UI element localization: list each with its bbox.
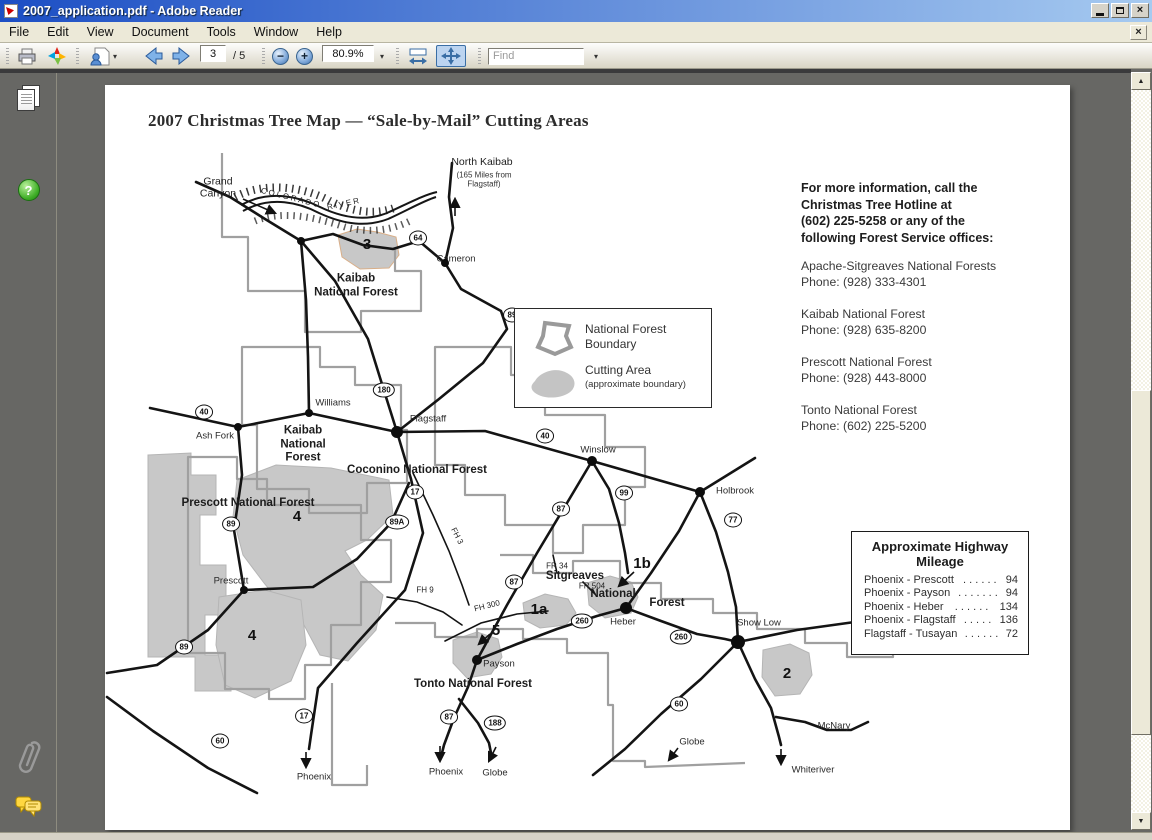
- zoom-out-button[interactable]: −: [272, 48, 289, 65]
- help-button[interactable]: ?: [0, 179, 57, 201]
- info-panel: For more information, call the Christmas…: [801, 180, 1033, 451]
- map-label: Heber: [610, 616, 636, 627]
- restore-icon: [1116, 7, 1124, 14]
- pages-panel-button[interactable]: [0, 85, 57, 111]
- minimize-button[interactable]: [1091, 3, 1109, 18]
- find-caret-icon[interactable]: ▾: [594, 45, 598, 67]
- map-label: FH 3: [449, 526, 465, 546]
- acrobat-star-icon: [47, 46, 67, 66]
- acrobat-collab-button[interactable]: [44, 45, 70, 67]
- close-button[interactable]: ×: [1131, 3, 1149, 18]
- fit-page-button[interactable]: [436, 45, 466, 67]
- mileage-box: Approximate Highway Mileage Phoenix - Pr…: [851, 531, 1029, 655]
- map-label: Williams: [315, 397, 350, 408]
- map-label: 1b: [633, 555, 651, 573]
- map-label: Kaibab National Forest: [314, 272, 398, 299]
- arrow-left-icon: [143, 47, 164, 65]
- map-label: 5: [492, 622, 500, 640]
- town-dot: [731, 635, 745, 649]
- map-label: FH 9: [416, 585, 433, 594]
- town-dot: [391, 426, 403, 438]
- town-dot: [472, 655, 482, 665]
- highway-shield: 99: [615, 486, 633, 501]
- map-label: Payson: [483, 658, 515, 669]
- highway-shield: 40: [536, 429, 554, 444]
- menu-help[interactable]: Help: [307, 22, 351, 42]
- map-label: (165 Miles from Flagstaff): [456, 171, 511, 190]
- map-legend: National Forest Boundary Cutting Area (a…: [514, 308, 712, 408]
- map-label: McNary: [818, 720, 851, 731]
- menu-edit[interactable]: Edit: [38, 22, 78, 42]
- highway-shield: 64: [409, 231, 427, 246]
- office-phone: Phone: (928) 443-8000: [801, 371, 1033, 387]
- page-count-label: / 5: [233, 45, 245, 67]
- zoom-level-select[interactable]: 80.9%: [322, 45, 374, 62]
- close-icon: ×: [1137, 5, 1143, 16]
- document-area: ? 2007 Christmas Tree Map — “S: [0, 73, 1131, 832]
- highway-shield: 87: [505, 575, 523, 590]
- paperclip-icon: [16, 737, 42, 779]
- printer-icon: [17, 48, 37, 65]
- pdf-page: 2007 Christmas Tree Map — “Sale-by-Mail”…: [105, 85, 1070, 830]
- town-dot: [441, 259, 449, 267]
- town-dot: [695, 487, 705, 497]
- office-name: Prescott National Forest: [801, 355, 1033, 371]
- town-dot: [587, 456, 597, 466]
- highway-shield: 180: [373, 383, 395, 398]
- pages-icon: [17, 85, 41, 111]
- find-input[interactable]: [488, 48, 584, 65]
- highway-shield: 17: [406, 485, 424, 500]
- map-label: Grand Canyon: [200, 176, 236, 201]
- map-label: 3: [363, 236, 371, 254]
- map-label: Show Low: [737, 617, 781, 628]
- toolbar-grip: [478, 48, 481, 65]
- map-label: Phoenix: [429, 766, 463, 777]
- navigation-pane: ?: [0, 73, 57, 832]
- office-entry: Prescott National ForestPhone: (928) 443…: [801, 355, 1033, 386]
- forest-offices: Apache-Sitgreaves National ForestsPhone:…: [801, 259, 1033, 434]
- legend-cut-sub: (approximate boundary): [585, 379, 686, 390]
- town-dot: [620, 602, 632, 614]
- map-label: Ash Fork: [196, 430, 234, 441]
- document-close-button[interactable]: ×: [1130, 25, 1147, 40]
- adobe-reader-window: 2007_application.pdf - Adobe Reader × Fi…: [0, 0, 1152, 840]
- scroll-thumb[interactable]: [1131, 390, 1151, 735]
- cutting-area-icon: [527, 365, 581, 401]
- highway-shield: 77: [724, 513, 742, 528]
- office-entry: Apache-Sitgreaves National ForestsPhone:…: [801, 259, 1033, 290]
- office-phone: Phone: (928) 635-8200: [801, 323, 1033, 339]
- office-phone: Phone: (928) 333-4301: [801, 275, 1033, 291]
- highway-shield: 260: [670, 630, 692, 645]
- minimize-icon: [1096, 13, 1104, 16]
- window-bottom-edge: [0, 832, 1152, 840]
- map-label: Coconino National Forest: [347, 464, 487, 478]
- pdf-app-icon: [4, 4, 18, 18]
- map-label: 2: [783, 665, 791, 683]
- vertical-scrollbar[interactable]: ▲ ▼: [1131, 72, 1151, 830]
- map-label: Phoenix: [297, 771, 331, 782]
- map-label: Whiteriver: [792, 764, 835, 775]
- map-label: 1a: [531, 601, 548, 619]
- office-name: Apache-Sitgreaves National Forests: [801, 259, 1033, 275]
- town-dot: [305, 409, 313, 417]
- highway-shield: 17: [295, 709, 313, 724]
- town-dot: [297, 237, 305, 245]
- map-label: Forest: [649, 597, 684, 611]
- fit-width-button[interactable]: [404, 45, 432, 67]
- office-phone: Phone: (602) 225-5200: [801, 419, 1033, 435]
- highway-shield: 89: [222, 517, 240, 532]
- scroll-up-button[interactable]: ▲: [1131, 72, 1151, 90]
- window-title: 2007_application.pdf - Adobe Reader: [23, 4, 242, 18]
- highway-shield: 40: [195, 405, 213, 420]
- menu-document[interactable]: Document: [123, 22, 198, 42]
- map-label: Kaibab National Forest: [280, 425, 325, 466]
- menu-bar: FileEditViewDocumentToolsWindowHelp: [0, 22, 1152, 43]
- attachments-panel-button[interactable]: [0, 737, 57, 779]
- help-icon: ?: [18, 179, 40, 201]
- title-bar: 2007_application.pdf - Adobe Reader ×: [0, 0, 1152, 22]
- next-page-button[interactable]: [168, 45, 194, 67]
- map-label: 4: [293, 508, 301, 526]
- map-label: 4: [248, 627, 256, 645]
- zoom-caret-icon[interactable]: ▾: [380, 45, 384, 67]
- map-label: Holbrook: [716, 485, 754, 496]
- toolbar-grip: [396, 48, 399, 65]
- fit-page-icon: [440, 46, 462, 66]
- mileage-row: Flagstaff - Tusayan. . . . . .72: [864, 628, 1018, 641]
- legend-cut-label: Cutting Area: [585, 363, 651, 378]
- toolbar-grip: [76, 48, 79, 65]
- menu-window[interactable]: Window: [245, 22, 307, 42]
- map-label: Globe: [679, 736, 704, 747]
- fit-width-icon: [407, 47, 429, 66]
- map-label: FH 300: [473, 598, 501, 614]
- forest-boundary-icon: [529, 319, 579, 359]
- town-dot: [240, 586, 248, 594]
- map-label: Flagstaff: [410, 413, 446, 424]
- highway-shield: 87: [440, 710, 458, 725]
- comments-panel-button[interactable]: [0, 795, 57, 817]
- map-label: Tonto National Forest: [414, 678, 532, 692]
- map-label: FR 504: [579, 581, 605, 590]
- previous-page-button[interactable]: [140, 45, 166, 67]
- toolbar-grip: [6, 48, 9, 65]
- zoom-in-button[interactable]: +: [296, 48, 313, 65]
- comments-icon: [15, 795, 43, 817]
- person-document-icon: [89, 47, 111, 66]
- town-dot: [234, 423, 242, 431]
- restore-button[interactable]: [1111, 3, 1129, 18]
- sign-identity-button[interactable]: ▾: [84, 45, 122, 67]
- office-entry: Tonto National ForestPhone: (602) 225-52…: [801, 403, 1033, 434]
- menu-view[interactable]: View: [78, 22, 123, 42]
- map-label: FR 34: [546, 561, 568, 570]
- legend-nf-label: National Forest Boundary: [585, 322, 666, 352]
- mileage-row: Phoenix - Heber. . . . . .134: [864, 601, 1018, 614]
- highway-shield: 87: [552, 502, 570, 517]
- highway-shield: 60: [670, 697, 688, 712]
- mileage-row: Phoenix - Prescott. . . . . .94: [864, 574, 1018, 587]
- highway-shield: 60: [211, 734, 229, 749]
- menu-file[interactable]: File: [0, 22, 38, 42]
- page-number-input[interactable]: 3: [200, 45, 226, 62]
- highway-shield: 89: [175, 640, 193, 655]
- arrow-right-icon: [171, 47, 192, 65]
- scroll-down-button[interactable]: ▼: [1131, 812, 1151, 830]
- office-entry: Kaibab National ForestPhone: (928) 635-8…: [801, 307, 1033, 338]
- hotline-text: For more information, call the Christmas…: [801, 180, 1033, 246]
- map-label: Winslow: [580, 444, 615, 455]
- highway-shield: 188: [484, 716, 506, 731]
- office-name: Tonto National Forest: [801, 403, 1033, 419]
- mileage-title: Approximate Highway Mileage: [852, 539, 1028, 569]
- highway-shield: 89A: [385, 515, 409, 530]
- office-name: Kaibab National Forest: [801, 307, 1033, 323]
- mileage-rows: Phoenix - Prescott. . . . . .94Phoenix -…: [864, 574, 1018, 641]
- mileage-row: Phoenix - Flagstaff. . . . .136: [864, 614, 1018, 627]
- toolbar-grip: [262, 48, 265, 65]
- map-label: Globe: [482, 767, 507, 778]
- print-button[interactable]: [14, 45, 40, 67]
- caret-down-icon: ▾: [113, 52, 117, 61]
- menu-tools[interactable]: Tools: [198, 22, 245, 42]
- toolbar: ▾ 3 / 5 − + 80.9% ▾: [0, 43, 1152, 69]
- mileage-row: Phoenix - Payson. . . . . . .94: [864, 587, 1018, 600]
- highway-shield: 260: [571, 614, 593, 629]
- map-label: North Kaibab: [451, 156, 512, 168]
- map-label: RIVER: [326, 196, 362, 212]
- map-label: Prescott: [214, 575, 249, 586]
- map-label: COLORADO: [260, 186, 322, 210]
